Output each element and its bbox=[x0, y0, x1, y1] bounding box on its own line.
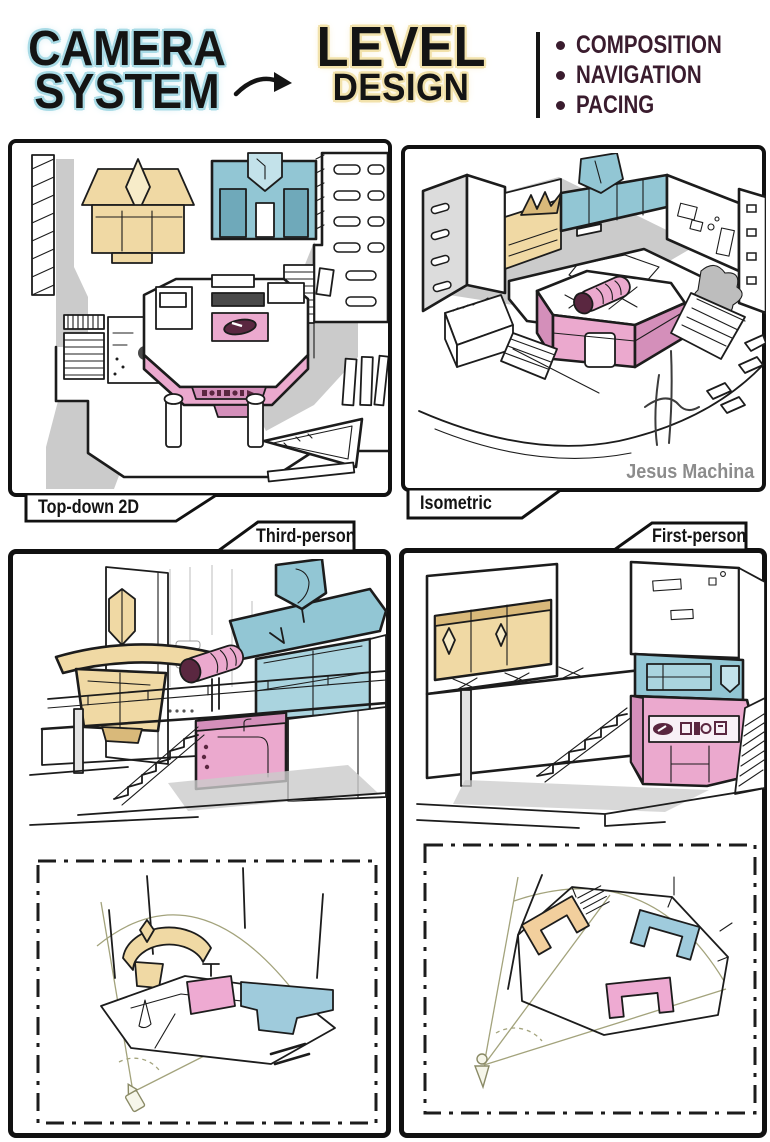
top-down-sketch bbox=[16, 147, 388, 493]
tab-text: Isometric bbox=[420, 493, 492, 515]
level-title-line2: DESIGN bbox=[301, 72, 502, 105]
mini-scene-3p bbox=[101, 868, 335, 1064]
level-design-title: LEVEL DESIGN bbox=[292, 22, 510, 106]
topic-label: NAVIGATION bbox=[576, 61, 702, 90]
tab-text: Top-down 2D bbox=[38, 497, 139, 519]
pillar bbox=[461, 690, 471, 786]
panel-first-person bbox=[399, 548, 767, 1138]
first-person-sketch bbox=[409, 558, 765, 843]
tab-text: Third-person bbox=[256, 526, 356, 548]
teal-band-fp bbox=[635, 654, 743, 700]
topic-label: PACING bbox=[576, 91, 654, 120]
header-divider bbox=[536, 32, 540, 118]
tab-text: First-person bbox=[652, 526, 746, 548]
third-person-sketch bbox=[18, 559, 389, 849]
teal-building-3p bbox=[230, 589, 386, 721]
crosswalk bbox=[342, 356, 388, 406]
left-building-fp bbox=[427, 564, 557, 694]
panel-isometric: Jesus Machina bbox=[401, 145, 766, 492]
label-top-down: Top-down 2D bbox=[24, 493, 220, 523]
left-wall bbox=[32, 155, 54, 295]
topic-item-navigation: NAVIGATION bbox=[556, 60, 754, 90]
infographic-page: CAMERA SYSTEM LEVEL DESIGN COMPOSITION N… bbox=[0, 0, 770, 1142]
stairs-left bbox=[64, 315, 104, 379]
topics-list: COMPOSITION NAVIGATION PACING bbox=[556, 30, 754, 120]
topic-item-pacing: PACING bbox=[556, 90, 754, 120]
tan-shop bbox=[82, 159, 194, 263]
panel-top-down bbox=[8, 139, 392, 497]
right-building bbox=[314, 153, 388, 322]
level-title-line1: LEVEL bbox=[301, 22, 502, 72]
planter bbox=[264, 419, 362, 481]
camera-icon bbox=[120, 1082, 146, 1112]
label-third-person: Third-person bbox=[216, 520, 356, 553]
pink-kiosk-iso bbox=[537, 271, 685, 367]
label-first-person: First-person bbox=[612, 521, 748, 552]
bullet-dot-icon bbox=[556, 101, 565, 110]
dashed-frame bbox=[425, 845, 755, 1113]
third-person-camera-diagram bbox=[33, 856, 381, 1128]
topic-label: COMPOSITION bbox=[576, 31, 722, 60]
artist-signature: Jesus Machina bbox=[626, 461, 754, 484]
bullet-dot-icon bbox=[556, 41, 565, 50]
mini-scene-fp bbox=[508, 875, 732, 1035]
bullet-dot-icon bbox=[556, 71, 565, 80]
first-person-camera-diagram bbox=[420, 837, 760, 1123]
right-building-iso bbox=[739, 189, 766, 313]
teal-shop bbox=[212, 153, 316, 239]
camera-system-title: CAMERA SYSTEM bbox=[14, 28, 240, 114]
pink-shop-fp bbox=[631, 696, 753, 786]
camera-title-line2: SYSTEM bbox=[23, 71, 231, 114]
topic-item-composition: COMPOSITION bbox=[556, 30, 754, 60]
isometric-sketch bbox=[409, 153, 766, 492]
panel-third-person bbox=[8, 549, 391, 1138]
label-isometric: Isometric bbox=[406, 488, 564, 520]
back-wall bbox=[667, 175, 739, 271]
street-curve bbox=[419, 365, 763, 446]
camera-icon-fp bbox=[475, 1054, 489, 1087]
arrow-icon bbox=[232, 66, 294, 104]
